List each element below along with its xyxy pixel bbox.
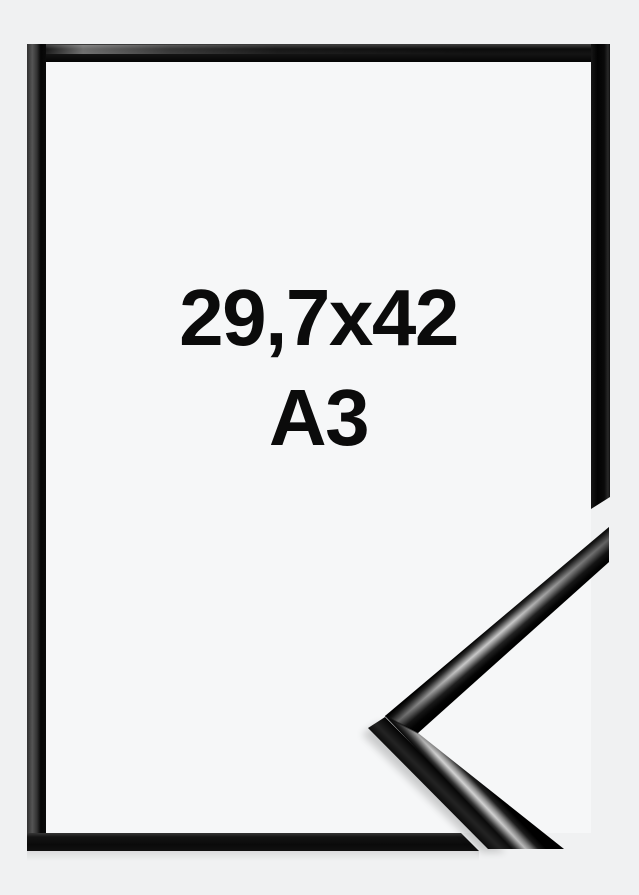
frame-size-format: A3 xyxy=(46,368,591,468)
frame-border-left xyxy=(27,44,46,851)
product-photo: 29,7x42 A3 xyxy=(0,0,639,895)
frame-size-label: 29,7x42 A3 xyxy=(46,268,591,468)
frame-gloss-highlight xyxy=(40,45,470,54)
frame-size-dimensions: 29,7x42 xyxy=(46,268,591,368)
frame-border-bottom xyxy=(27,833,479,851)
frame-drop-shadow xyxy=(27,851,479,861)
frame-border-right xyxy=(591,44,610,509)
